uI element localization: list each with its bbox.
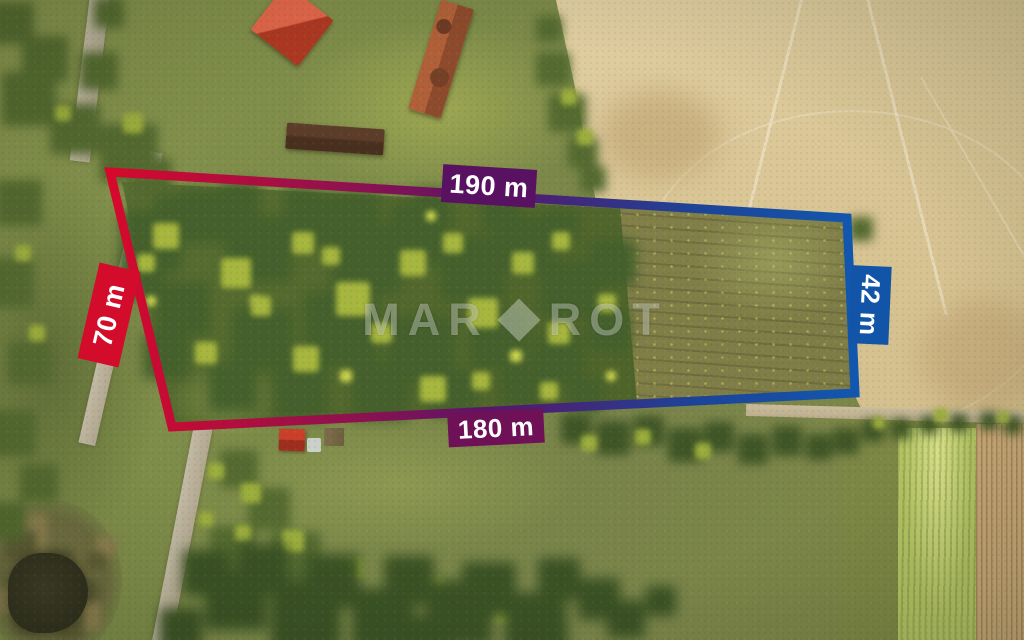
dimension-label-top: 190 m	[441, 164, 537, 208]
dimension-label-right: 42 m	[848, 265, 891, 345]
aerial-photo: MAR ROT 190 m 180 m 70 m 42 m	[0, 0, 1024, 640]
dimension-label-bottom: 180 m	[447, 409, 545, 448]
